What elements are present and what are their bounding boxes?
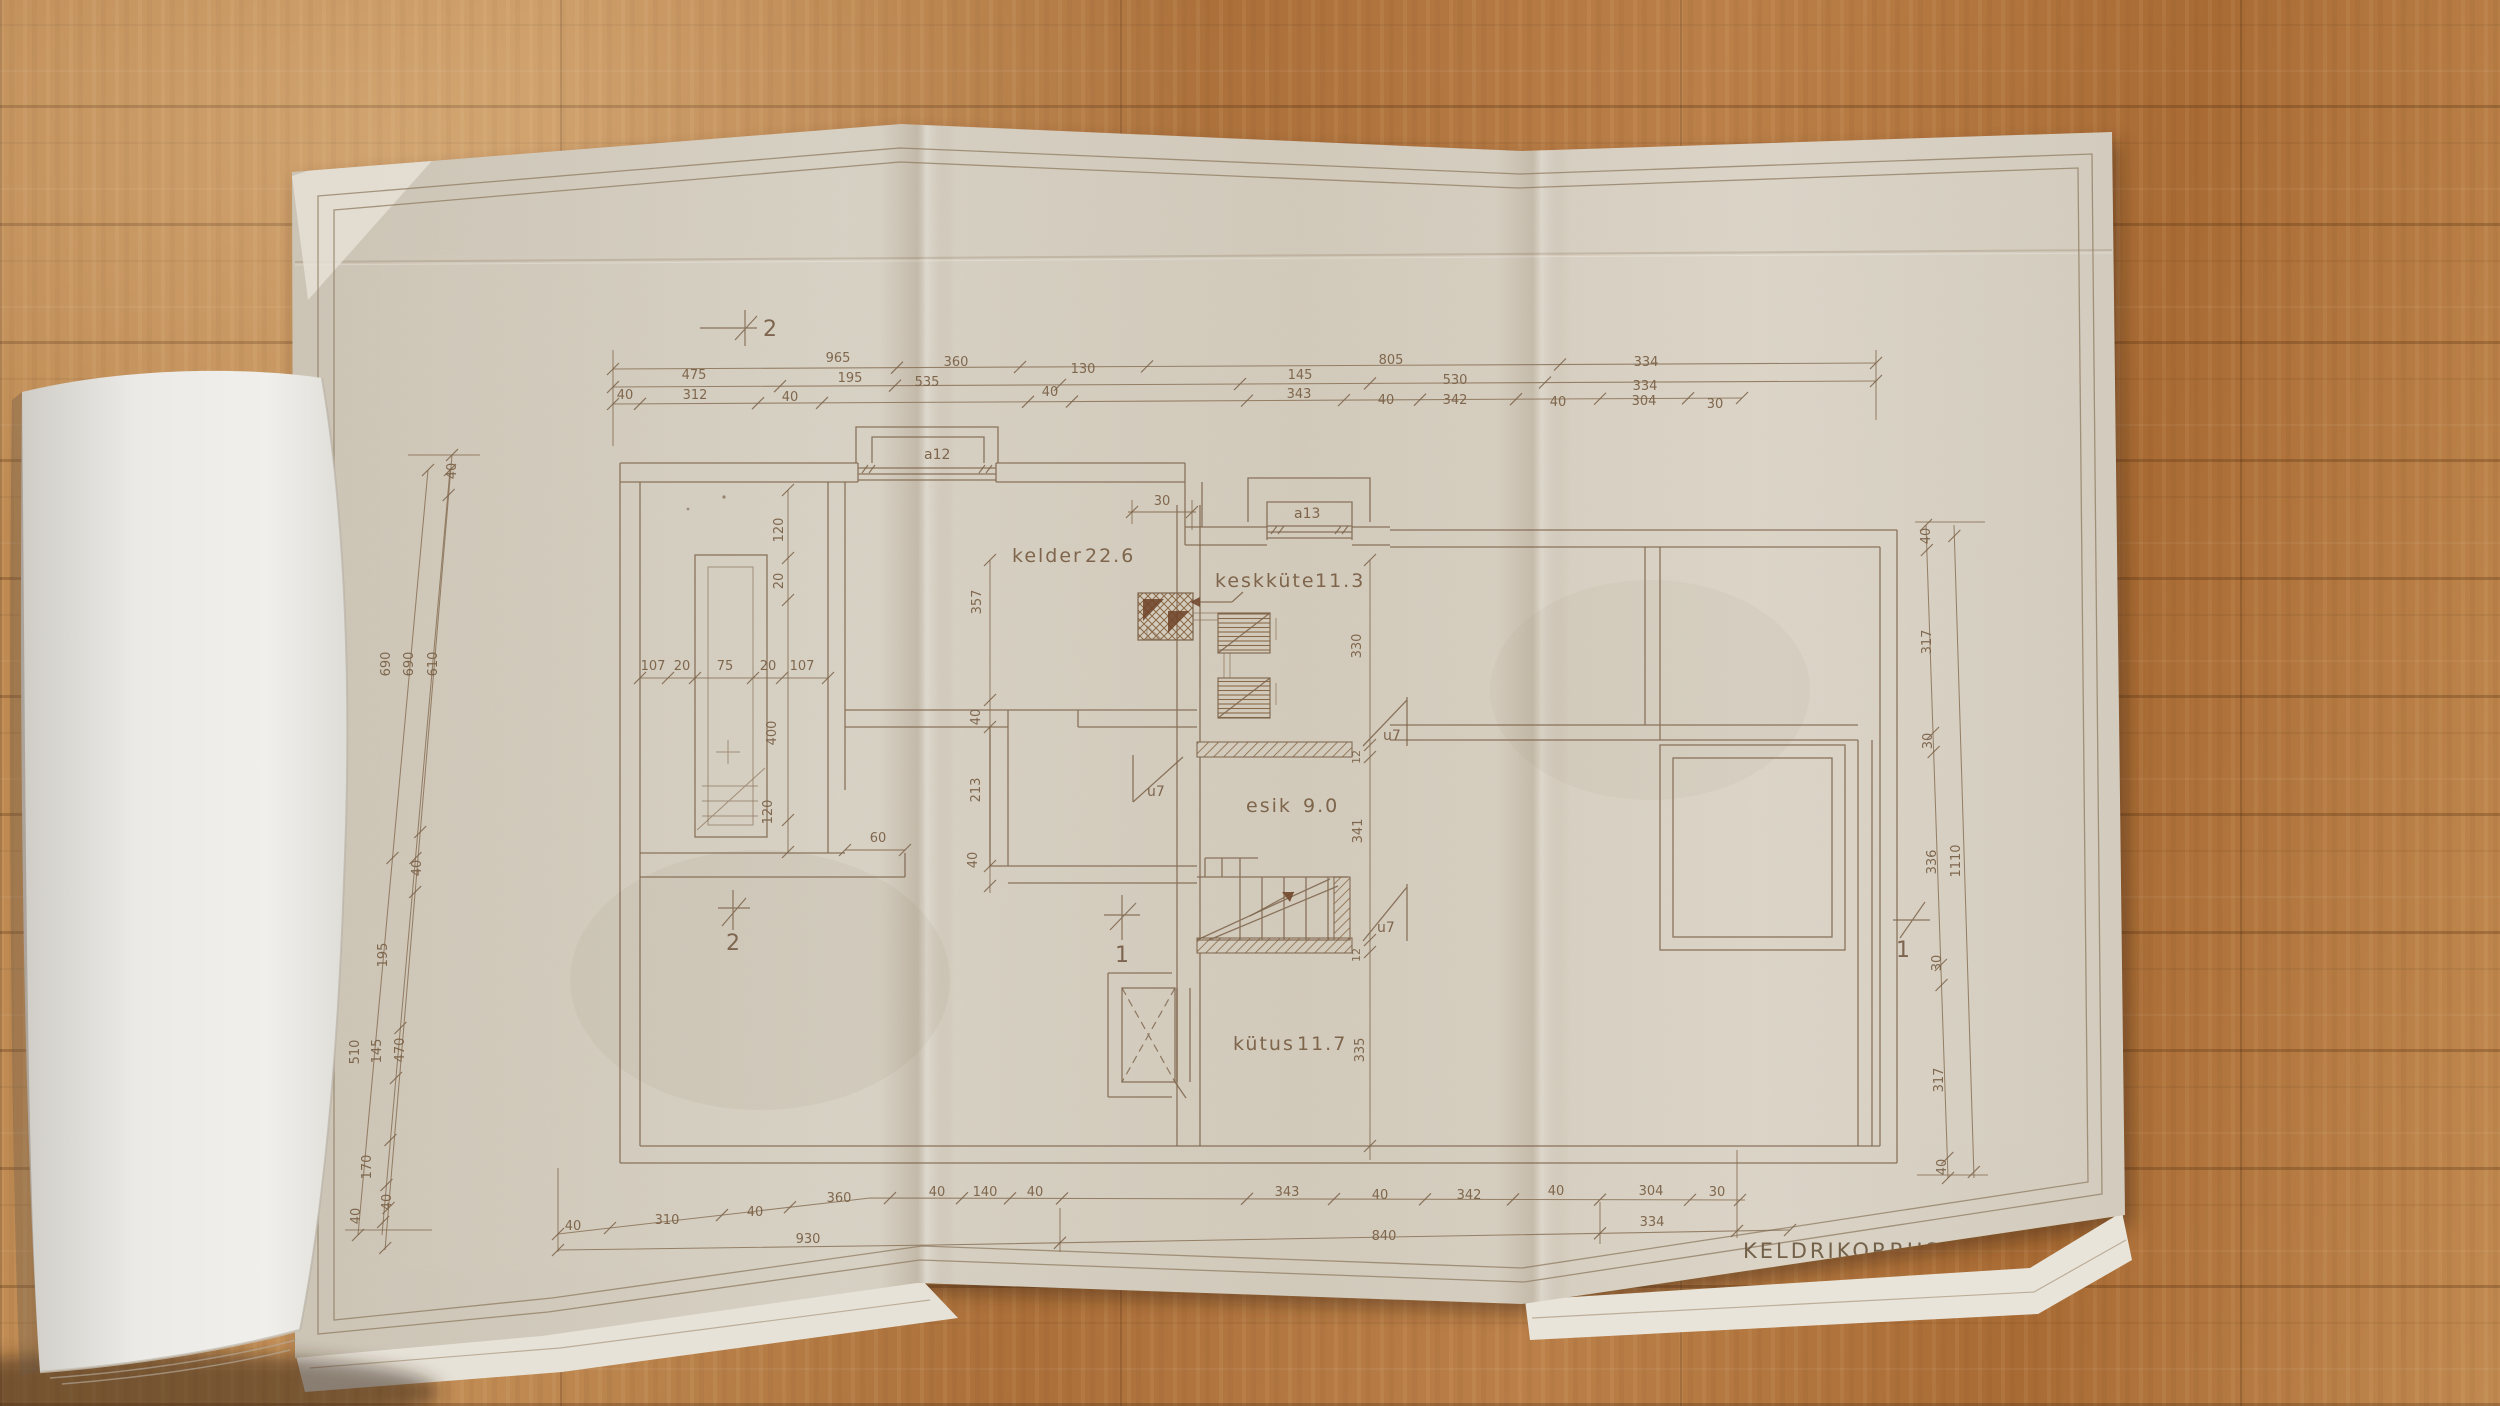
dimension-label: 343: [1287, 387, 1312, 402]
dimension-label: 690: [379, 652, 394, 677]
dimension-label: 357: [970, 590, 985, 615]
dimension-label: 343: [1275, 1185, 1300, 1200]
blueprint-sheet: 9653601308053344751955351455303344031240…: [292, 118, 2132, 1368]
door-tag-u7: u7: [1383, 728, 1401, 744]
dimension-label: 40: [445, 463, 460, 480]
door-tag-u7: u7: [1147, 784, 1165, 800]
dimension-label: 360: [827, 1191, 852, 1206]
dimension-label: 40: [565, 1219, 582, 1234]
drawing-scale: m 1:50: [1990, 1248, 2046, 1264]
dimension-label: 40: [782, 390, 799, 405]
window-tag-a12: a12: [924, 447, 950, 463]
stair-newel-wall: [1334, 877, 1350, 940]
dimension-label: 30: [1709, 1185, 1726, 1200]
section-marker-1: 1: [1115, 943, 1129, 968]
dimension-label: 360: [944, 355, 969, 370]
dimension-label: 40: [747, 1205, 764, 1220]
dimension-label: 690: [402, 652, 417, 677]
dimension-label: 213: [969, 778, 984, 803]
dimension-label: 75: [717, 659, 734, 674]
dimension-label: 40: [1042, 385, 1059, 400]
dimension-label: 335: [1353, 1038, 1368, 1063]
dimension-label: 20: [760, 659, 777, 674]
dimension-label: 40: [617, 388, 634, 403]
room-area-esik: 9.0: [1303, 795, 1339, 817]
hatched-wall-keskkute-esik: [1197, 742, 1352, 757]
dimension-label: 304: [1632, 394, 1657, 409]
dimension-label: 30: [1707, 397, 1724, 412]
photo-of-blueprint-on-wood-floor: 9653601308053344751955351455303344031240…: [0, 0, 2500, 1406]
dimension-label: 40: [410, 860, 425, 877]
dimension-label: 304: [1639, 1184, 1664, 1199]
room-area-kelder: 22.6: [1085, 545, 1135, 567]
dimension-label: 341: [1351, 819, 1366, 844]
dimension-label: 530: [1443, 373, 1468, 388]
section-marker-2: 2: [726, 931, 740, 956]
dimension-label: 145: [370, 1039, 385, 1064]
dimension-label: 334: [1640, 1215, 1665, 1230]
dimension-label: 12: [1350, 948, 1363, 962]
dimension-label: 334: [1634, 355, 1659, 370]
dimension-label: 145: [1288, 368, 1313, 383]
room-name-esik: esik: [1246, 795, 1292, 817]
dimension-label: 40: [349, 1208, 364, 1225]
dimension-label: 535: [915, 375, 940, 390]
room-name-kelder: kelder: [1012, 545, 1083, 567]
dimension-label: 965: [826, 351, 851, 366]
dimension-label: 107: [641, 659, 666, 674]
dimension-label: 840: [1372, 1229, 1397, 1244]
dimension-label: 195: [838, 371, 863, 386]
dimension-label: 317: [1932, 1068, 1947, 1093]
dimension-label: 20: [674, 659, 691, 674]
room-name-kütus: kütus: [1233, 1033, 1295, 1055]
room-name-keskküte: keskküte: [1215, 570, 1316, 592]
room-area-keskküte: 11.3: [1315, 570, 1365, 592]
dimension-label: 140: [973, 1185, 998, 1200]
dimension-label: 60: [870, 831, 887, 846]
dimension-label: 40: [1919, 528, 1934, 545]
dimension-label: 40: [1027, 1185, 1044, 1200]
dimension-label: 805: [1379, 353, 1404, 368]
dimension-label: 510: [348, 1040, 363, 1065]
dimension-label: 30: [1921, 733, 1936, 750]
dimension-label: 40: [1378, 393, 1395, 408]
scene-canvas: 9653601308053344751955351455303344031240…: [0, 0, 2500, 1406]
dimension-label: 334: [1633, 379, 1658, 394]
dimension-label: 30: [1154, 494, 1171, 509]
dimension-label: 107: [790, 659, 815, 674]
dimension-label: 40: [1372, 1188, 1389, 1203]
dimension-label: 342: [1443, 393, 1468, 408]
window-tag-a13: a13: [1294, 506, 1320, 522]
dimension-label: 336: [1925, 850, 1940, 875]
dimension-label: 1110: [1949, 844, 1964, 877]
fold-crease-left: [880, 118, 955, 1368]
dimension-label: 342: [1457, 1188, 1482, 1203]
dimension-label: 120: [761, 800, 776, 825]
dimension-label: 120: [772, 518, 787, 543]
dimension-label: 40: [380, 1194, 395, 1211]
dimension-label: 312: [683, 388, 708, 403]
dimension-label: 40: [966, 852, 981, 869]
dimension-label: 40: [929, 1185, 946, 1200]
dimension-label: 40: [1548, 1184, 1565, 1199]
dimension-label: 317: [1920, 630, 1935, 655]
dimension-label: 400: [765, 721, 780, 746]
dimension-label: 40: [1935, 1159, 1950, 1176]
sheet-surface: 9653601308053344751955351455303344031240…: [292, 118, 2132, 1368]
room-area-kütus: 11.7: [1297, 1033, 1347, 1055]
dimension-label: 30: [1930, 955, 1945, 972]
dimension-label: 470: [393, 1038, 408, 1063]
dimension-label: 195: [376, 943, 391, 968]
door-tag-u7: u7: [1377, 920, 1395, 936]
dimension-label: 930: [796, 1232, 821, 1247]
section-marker-2: 2: [763, 317, 777, 342]
dimension-label: 12: [1350, 750, 1363, 764]
page-paper: [21, 371, 347, 1372]
dimension-label: 330: [1350, 634, 1365, 659]
section-marker-1: 1: [1896, 938, 1910, 963]
dimension-label: 40: [969, 709, 984, 726]
dimension-label: 310: [655, 1213, 680, 1228]
dimension-label: 170: [360, 1155, 375, 1180]
dimension-label: 40: [1550, 395, 1567, 410]
dimension-label: 610: [426, 652, 441, 677]
dimension-label: 475: [682, 368, 707, 383]
dimension-label: 20: [772, 573, 787, 590]
dimension-label: 130: [1071, 362, 1096, 377]
